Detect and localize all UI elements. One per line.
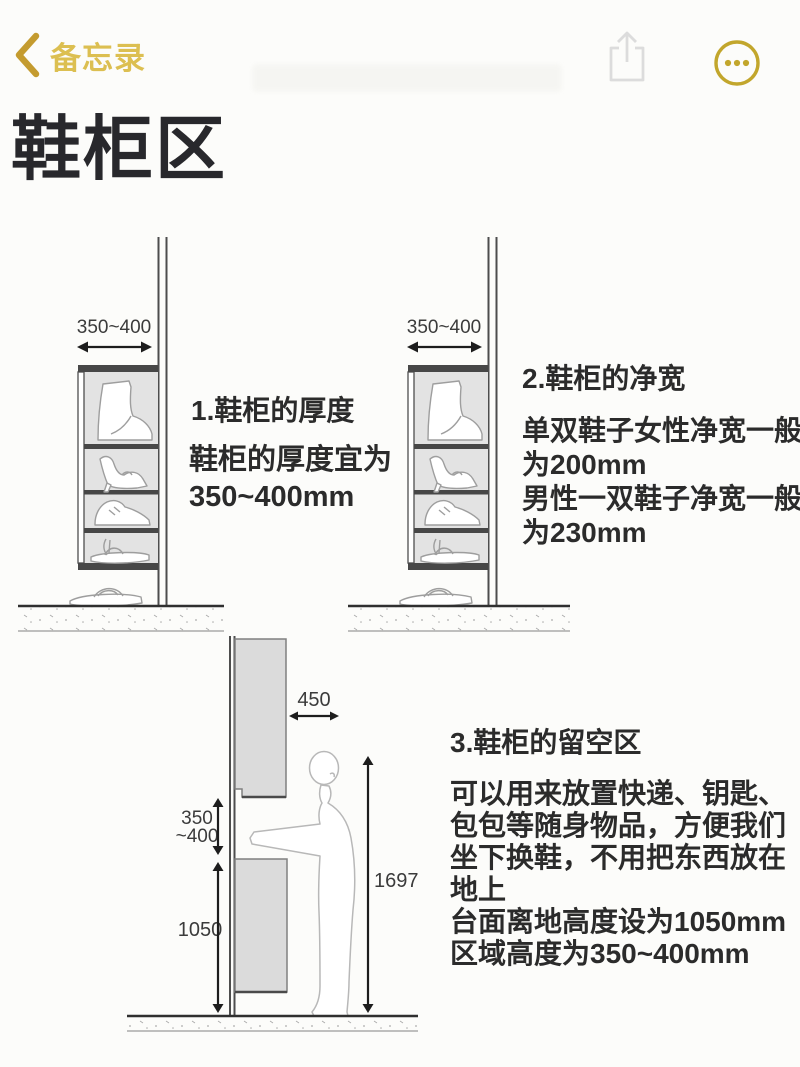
body-line: 地上 [450, 874, 786, 906]
width-dimension-label: 350~400 [77, 317, 152, 338]
gap-dimension: 350 ~400 [176, 798, 224, 855]
body-line: 包包等随身物品，方便我们 [450, 810, 786, 842]
width-dimension: 350~400 [77, 317, 152, 353]
diagram-free-space: 450 350 ~400 1050 1697 [100, 628, 440, 1038]
more-options-icon [710, 36, 764, 90]
wall [489, 237, 497, 606]
slipper [70, 589, 142, 607]
notes-app-screen: 备忘录 鞋柜区 350 [0, 0, 800, 1067]
wall [230, 636, 235, 1016]
body-line: 单双鞋子女性净宽一般 [522, 414, 800, 448]
body-line: 可以用来放置快递、钥匙、 [450, 778, 786, 810]
section-2-heading: 2.鞋柜的净宽 [522, 357, 685, 397]
wall [159, 237, 167, 606]
share-icon [602, 28, 652, 88]
body-line: 为230mm [522, 516, 800, 550]
page-title: 鞋柜区 [11, 106, 227, 192]
body-line: 坐下换鞋，不用把东西放在 [450, 842, 786, 874]
floor [127, 1016, 418, 1031]
gap-dimension-label-2: ~400 [176, 826, 219, 847]
body-line: 台面离地高度设为1050mm [450, 906, 786, 938]
back-button[interactable]: 备忘录 [14, 32, 146, 78]
share-button[interactable] [602, 28, 652, 88]
section-3-heading: 3.鞋柜的留空区 [450, 721, 641, 761]
section-2-body: 单双鞋子女性净宽一般 为200mm 男性一双鞋子净宽一般 为230mm [522, 414, 800, 550]
body-line: 为200mm [522, 448, 800, 482]
back-label: 备忘录 [50, 33, 146, 78]
more-button[interactable] [710, 36, 764, 90]
width-dimension: 350~400 [407, 317, 482, 353]
section-1-heading: 1.鞋柜的厚度 [191, 389, 354, 429]
diagram-cabinet-depth: 350~400 [10, 235, 245, 635]
width-dimension-label: 350~400 [407, 317, 482, 338]
body-line: 男性一双鞋子净宽一般 [522, 482, 800, 516]
depth-dimension: 450 [289, 689, 339, 721]
watermark [252, 64, 562, 92]
body-line: 区域高度为350~400mm [450, 938, 786, 970]
depth-dimension-label: 450 [297, 689, 330, 711]
slipper [400, 589, 472, 607]
body-line: 鞋柜的厚度宜为 [189, 442, 392, 479]
person-height-label: 1697 [374, 870, 419, 892]
body-line: 350~400mm [189, 479, 392, 516]
section-3-body: 可以用来放置快递、钥匙、 包包等随身物品，方便我们 坐下换鞋，不用把东西放在 地… [450, 778, 786, 970]
lower-cabinet [235, 859, 287, 992]
upper-cabinet [235, 639, 286, 797]
counter-height-label: 1050 [178, 919, 223, 941]
section-1-body: 鞋柜的厚度宜为 350~400mm [189, 442, 392, 516]
counter-height-dimension: 1050 [178, 862, 224, 1013]
chevron-left-icon [14, 32, 40, 78]
person-height-dimension: 1697 [363, 756, 419, 1013]
